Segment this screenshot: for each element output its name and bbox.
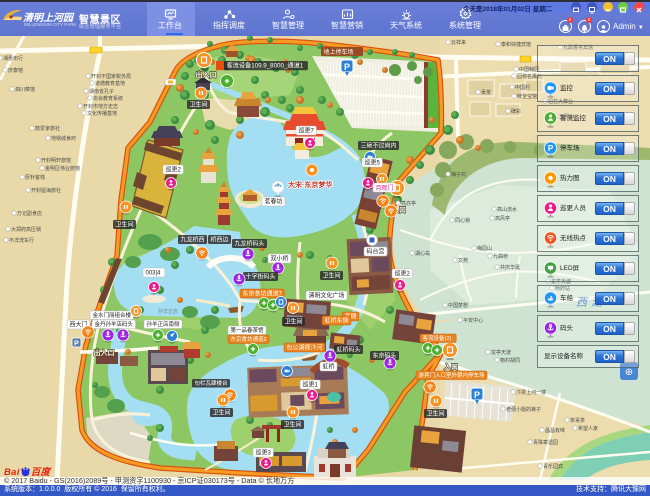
svg-text:碑彩: 碑彩	[511, 108, 521, 115]
svg-text:虹桥东侧: 虹桥东侧	[325, 317, 349, 325]
svg-text:中国村: 中国村	[515, 84, 530, 91]
svg-text:地上停车场: 地上停车场	[324, 48, 354, 56]
svg-text:第一品春茶馆: 第一品春茶馆	[231, 326, 265, 334]
svg-text:003|4: 003|4	[146, 271, 162, 277]
svg-text:开封屋海旅社: 开封屋海旅社	[31, 187, 61, 194]
svg-text:码台宫: 码台宫	[367, 248, 385, 256]
svg-text:客流设备(2): 客流设备(2)	[423, 334, 452, 342]
svg-text:湖心岛: 湖心岛	[415, 250, 430, 257]
svg-text:贡茶: 贡茶	[481, 89, 491, 96]
svg-text:卫生间: 卫生间	[323, 272, 341, 280]
svg-text:双小桥: 双小桥	[271, 255, 289, 263]
svg-text:入口: 入口	[443, 363, 458, 371]
svg-text:开封市地方史志: 开封市地方史志	[83, 103, 118, 110]
svg-text:东京食坊通道2: 东京食坊通道2	[231, 335, 267, 343]
svg-text:老便小姐的裤子: 老便小姐的裤子	[506, 406, 541, 413]
svg-text:厚朴客栈: 厚朴客栈	[25, 174, 45, 181]
svg-text:开封明轩旅馆: 开封明轩旅馆	[41, 157, 71, 164]
svg-text:文苑: 文苑	[458, 257, 468, 264]
svg-text:虹桥: 虹桥	[323, 363, 335, 371]
svg-text:平安中心: 平安中心	[463, 317, 483, 324]
svg-text:开封不国家税务局: 开封不国家税务局	[91, 73, 131, 80]
svg-text:孙羊正店南侧: 孙羊正店南侧	[147, 320, 181, 328]
svg-text:不洋洗车行: 不洋洗车行	[9, 237, 34, 244]
svg-text:P: P	[548, 143, 554, 152]
svg-text:卫生间: 卫生间	[190, 101, 208, 109]
svg-text:九龙桥码头: 九龙桥码头	[235, 240, 265, 248]
svg-text:清明文化广场: 清明文化广场	[309, 292, 345, 300]
svg-text:卫生间: 卫生间	[213, 409, 231, 417]
svg-text:卫生间: 卫生间	[285, 318, 303, 326]
svg-text:道德教育基地: 道德教育基地	[95, 80, 125, 87]
svg-text:P: P	[474, 390, 480, 400]
svg-text:茶哥茶: 茶哥茶	[570, 417, 585, 424]
svg-text:希望人家: 希望人家	[578, 425, 598, 432]
svg-text:金明区伟业旅馆: 金明区伟业旅馆	[45, 165, 80, 172]
svg-text:昌昌有味: 昌昌有味	[545, 427, 565, 434]
svg-text:中国翰园: 中国翰园	[519, 66, 539, 73]
svg-text:卫生间: 卫生间	[427, 410, 445, 418]
svg-text:巡更1: 巡更1	[303, 381, 319, 389]
svg-text:物村胡同: 物村胡同	[500, 357, 520, 364]
svg-text:游宾门入口室外朝内停车场: 游宾门入口室外朝内停车场	[419, 371, 486, 379]
svg-text:梅园山: 梅园山	[477, 245, 492, 252]
svg-text:九龙桥西: 九龙桥西	[181, 236, 205, 244]
svg-text:出入口: 出入口	[94, 348, 115, 357]
svg-text:协会教育系统: 协会教育系统	[93, 95, 123, 102]
svg-text:龙亭天波: 龙亭天波	[491, 349, 511, 356]
svg-text:共庆华诞: 共庆华诞	[500, 264, 520, 271]
svg-text:出入口: 出入口	[196, 70, 217, 79]
svg-text:客流设备109.9_8000_通道1: 客流设备109.9_8000_通道1	[227, 62, 304, 70]
svg-text:湖南省孔子: 湖南省孔子	[89, 88, 114, 95]
svg-text:云祥来: 云祥来	[451, 39, 466, 46]
svg-text:巡更7: 巡更7	[299, 127, 315, 135]
svg-text:万记副食店: 万记副食店	[17, 210, 42, 217]
svg-text:桥西边: 桥西边	[211, 236, 229, 244]
svg-text:大郑府高压锅: 大郑府高压锅	[11, 226, 41, 233]
svg-text:泰和快捷宾馆: 泰和快捷宾馆	[501, 41, 531, 48]
svg-text:P: P	[344, 62, 350, 72]
svg-text:青乐园宾: 青乐园宾	[543, 463, 563, 470]
svg-text:虹桥码头: 虹桥码头	[337, 346, 361, 354]
svg-text:地锅城食府: 地锅城食府	[51, 135, 76, 142]
svg-text:大宋·东京梦华: 大宋·东京梦华	[288, 180, 332, 189]
svg-text:巡更3: 巡更3	[256, 449, 272, 457]
svg-text:十字街码头: 十字街码头	[246, 273, 276, 281]
svg-text:巡更5: 巡更5	[365, 159, 381, 167]
svg-text:句栏瓦肆楼台: 句栏瓦肆楼台	[195, 379, 229, 387]
svg-text:月观门: 月观门	[376, 184, 394, 192]
svg-text:金丹孙羊店码头: 金丹孙羊店码头	[95, 320, 134, 328]
svg-text:湘惠布行: 湘惠布行	[3, 55, 23, 62]
svg-text:高山流水: 高山流水	[497, 206, 517, 213]
svg-text:青陎章遗园: 青陎章遗园	[533, 439, 558, 446]
svg-text:巡更2: 巡更2	[395, 270, 411, 278]
svg-text:梅子石: 梅子石	[451, 171, 466, 178]
svg-text:汴梁上河一楼: 汴梁上河一楼	[516, 389, 546, 396]
svg-text:P: P	[74, 341, 79, 348]
svg-text:茗春坊: 茗春坊	[265, 198, 283, 206]
svg-text:金水门丽组合楼: 金水门丽组合楼	[93, 311, 132, 319]
svg-text:文化传播基地: 文化传播基地	[87, 110, 117, 117]
svg-text:三碗不过岗内: 三碗不过岗内	[361, 142, 397, 150]
svg-text:中国梦想: 中国梦想	[448, 302, 468, 309]
svg-text:包公湖视汴河: 包公湖视汴河	[287, 344, 323, 352]
svg-text:巡更2: 巡更2	[166, 166, 182, 174]
svg-text:卫生间: 卫生间	[116, 221, 134, 229]
svg-text:孙羊正店: 孙羊正店	[158, 308, 178, 315]
svg-text:高风亭: 高风亭	[495, 215, 510, 222]
svg-text:东京食坊通道7: 东京食坊通道7	[243, 290, 283, 298]
svg-text:同心锁: 同心锁	[455, 217, 470, 224]
svg-text:泗川菜馆: 泗川菜馆	[15, 86, 35, 93]
svg-text:鼓爱家旅社: 鼓爱家旅社	[35, 125, 60, 132]
svg-text:亮亦亭: 亮亦亭	[401, 200, 416, 207]
svg-text:鲜全宝馆: 鲜全宝馆	[517, 93, 537, 100]
svg-text:卫生间: 卫生间	[284, 421, 302, 429]
svg-text:庆泰馆: 庆泰馆	[8, 67, 23, 74]
svg-text:九曲桥: 九曲桥	[493, 253, 508, 260]
